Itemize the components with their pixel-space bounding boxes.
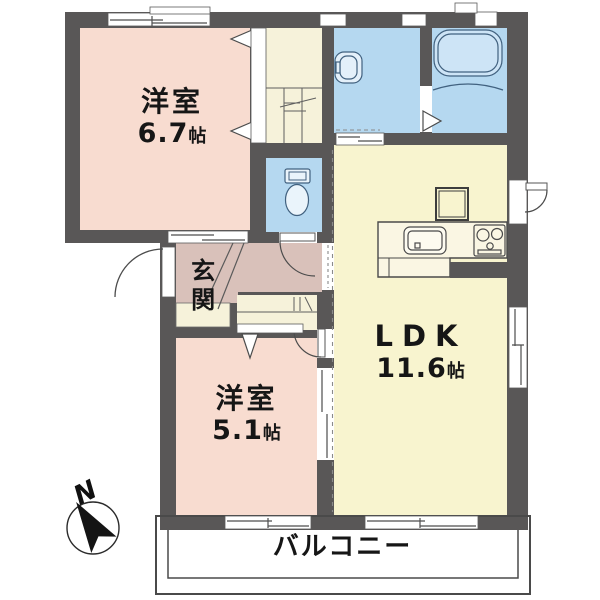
refrigerator-box: [436, 188, 468, 220]
toilet-icon: [285, 169, 310, 216]
room-unit: 帖: [263, 423, 281, 444]
hall-floor: [238, 243, 322, 292]
compass: N: [64, 475, 119, 554]
stove-icon: [474, 225, 505, 256]
room-name: LDK: [374, 319, 466, 353]
room-size: 11.6: [376, 353, 447, 384]
front-door-arc: [115, 249, 163, 297]
balcony-label: バルコニー: [165, 533, 520, 563]
sink-icon: [404, 227, 446, 254]
floor-plan: N 洋室 6.7帖 洋室 5.1帖 LDK 11.6帖 玄関 バルコニー: [0, 0, 600, 600]
washroom-sliding-door: [336, 133, 384, 145]
washbasin-icon: [335, 52, 362, 83]
side-door-arc: [525, 190, 547, 212]
entrance-label: 玄関: [186, 247, 214, 327]
room1-sliding-door: [168, 231, 248, 243]
ldk-balcony-window: [365, 516, 478, 529]
floor-plan-graphics: N: [0, 0, 600, 600]
room-unit: 帖: [447, 361, 465, 382]
room-unit: 帖: [188, 126, 206, 147]
toilet-door-leaf: [280, 233, 315, 241]
room-name: 洋室: [141, 85, 203, 118]
west-room-1-label: 洋室 6.7帖: [92, 86, 252, 149]
west-room-2-label: 洋室 5.1帖: [176, 383, 317, 446]
kitchen-partition-wall: [450, 262, 507, 278]
room2-door-leaf: [318, 329, 325, 357]
room2-ldk-sliding-gap: [317, 368, 334, 460]
ldk-side-window: [509, 307, 527, 388]
closet2-door-strip: [237, 324, 303, 333]
closet-1-floor: [266, 28, 322, 143]
room-size: 5.1: [212, 415, 263, 446]
closet1-door-strip: [251, 28, 266, 143]
front-door-gap: [162, 247, 175, 297]
room-name: バルコニー: [273, 532, 412, 562]
room-size: 6.7: [138, 118, 189, 149]
room-name: 玄関: [187, 258, 215, 316]
side-door-leaf: [526, 183, 547, 190]
room-name: 洋室: [215, 382, 277, 415]
ldk-label: LDK 11.6帖: [334, 320, 507, 384]
side-door-gap: [509, 180, 527, 224]
